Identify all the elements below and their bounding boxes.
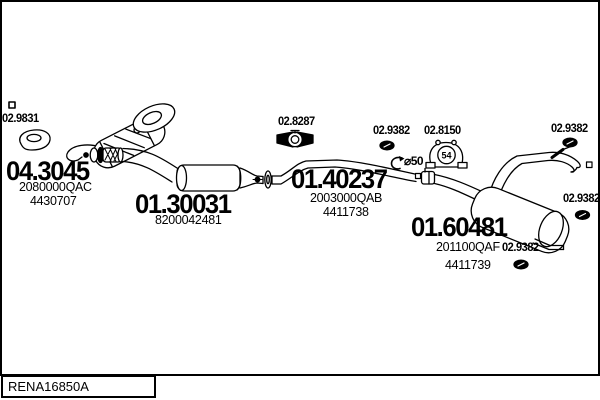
part-code-hanger[interactable]: 02.8150 [424,124,461,136]
flange-ring-icon [265,171,271,188]
clamp-icon [563,138,577,147]
clamp-arrow-icon [392,156,405,169]
gasket-icon [20,130,50,150]
part-code-front-gasket[interactable]: 02.9831 [2,112,39,124]
clamp-icon [514,260,528,269]
part-oem-rear-muffler: 201100QAF [436,241,500,254]
drawing-number-box: RENA16850A [1,375,156,398]
exhaust-parts-diagram: 54 02.9831 04.3045 2080000QAC 4430707 01… [0,0,600,400]
flange-ring-icon [90,148,98,162]
centre-muffler-graphic [177,165,264,191]
u-bolt-clamp-icon [277,131,313,148]
part-code-centre-pipe[interactable]: 01.40237 [291,166,387,193]
pipe-diameter-annotation: ⌀50 [404,155,423,167]
part-code-front-clamp[interactable]: 02.8287 [278,115,315,127]
clamp-icon [380,141,394,150]
part-code-clamp-a[interactable]: 02.9382 [373,124,410,136]
joint-marker-icon [587,162,593,168]
hanger-number: 54 [441,151,451,161]
part-ref-rear-muffler: 4411739 [445,259,491,272]
rubber-hanger-icon: 54 [426,140,467,168]
part-oem-centre-muffler: 8200042481 [155,214,222,227]
joint-marker-icon [416,174,421,179]
part-ref-centre-pipe: 4411738 [323,206,369,219]
corner-marker-icon [9,102,15,108]
part-oem-centre-pipe: 2003000QAB [310,192,382,205]
pipe-sleeve-clamp-icon [422,169,435,185]
drawing-number: RENA16850A [8,379,89,394]
part-code-clamp-c[interactable]: 02.9382 [563,192,600,204]
part-ref-catalyst: 4430707 [30,195,77,208]
part-code-rear-muffler[interactable]: 01.60481 [411,214,507,241]
part-oem-catalyst: 2080000QAC [19,181,92,194]
part-code-clamp-b[interactable]: 02.9382 [551,122,588,134]
clamp-icon [576,211,590,220]
part-code-clamp-d[interactable]: 02.9382 [502,241,539,253]
flex-pipe-graphic [103,148,123,162]
